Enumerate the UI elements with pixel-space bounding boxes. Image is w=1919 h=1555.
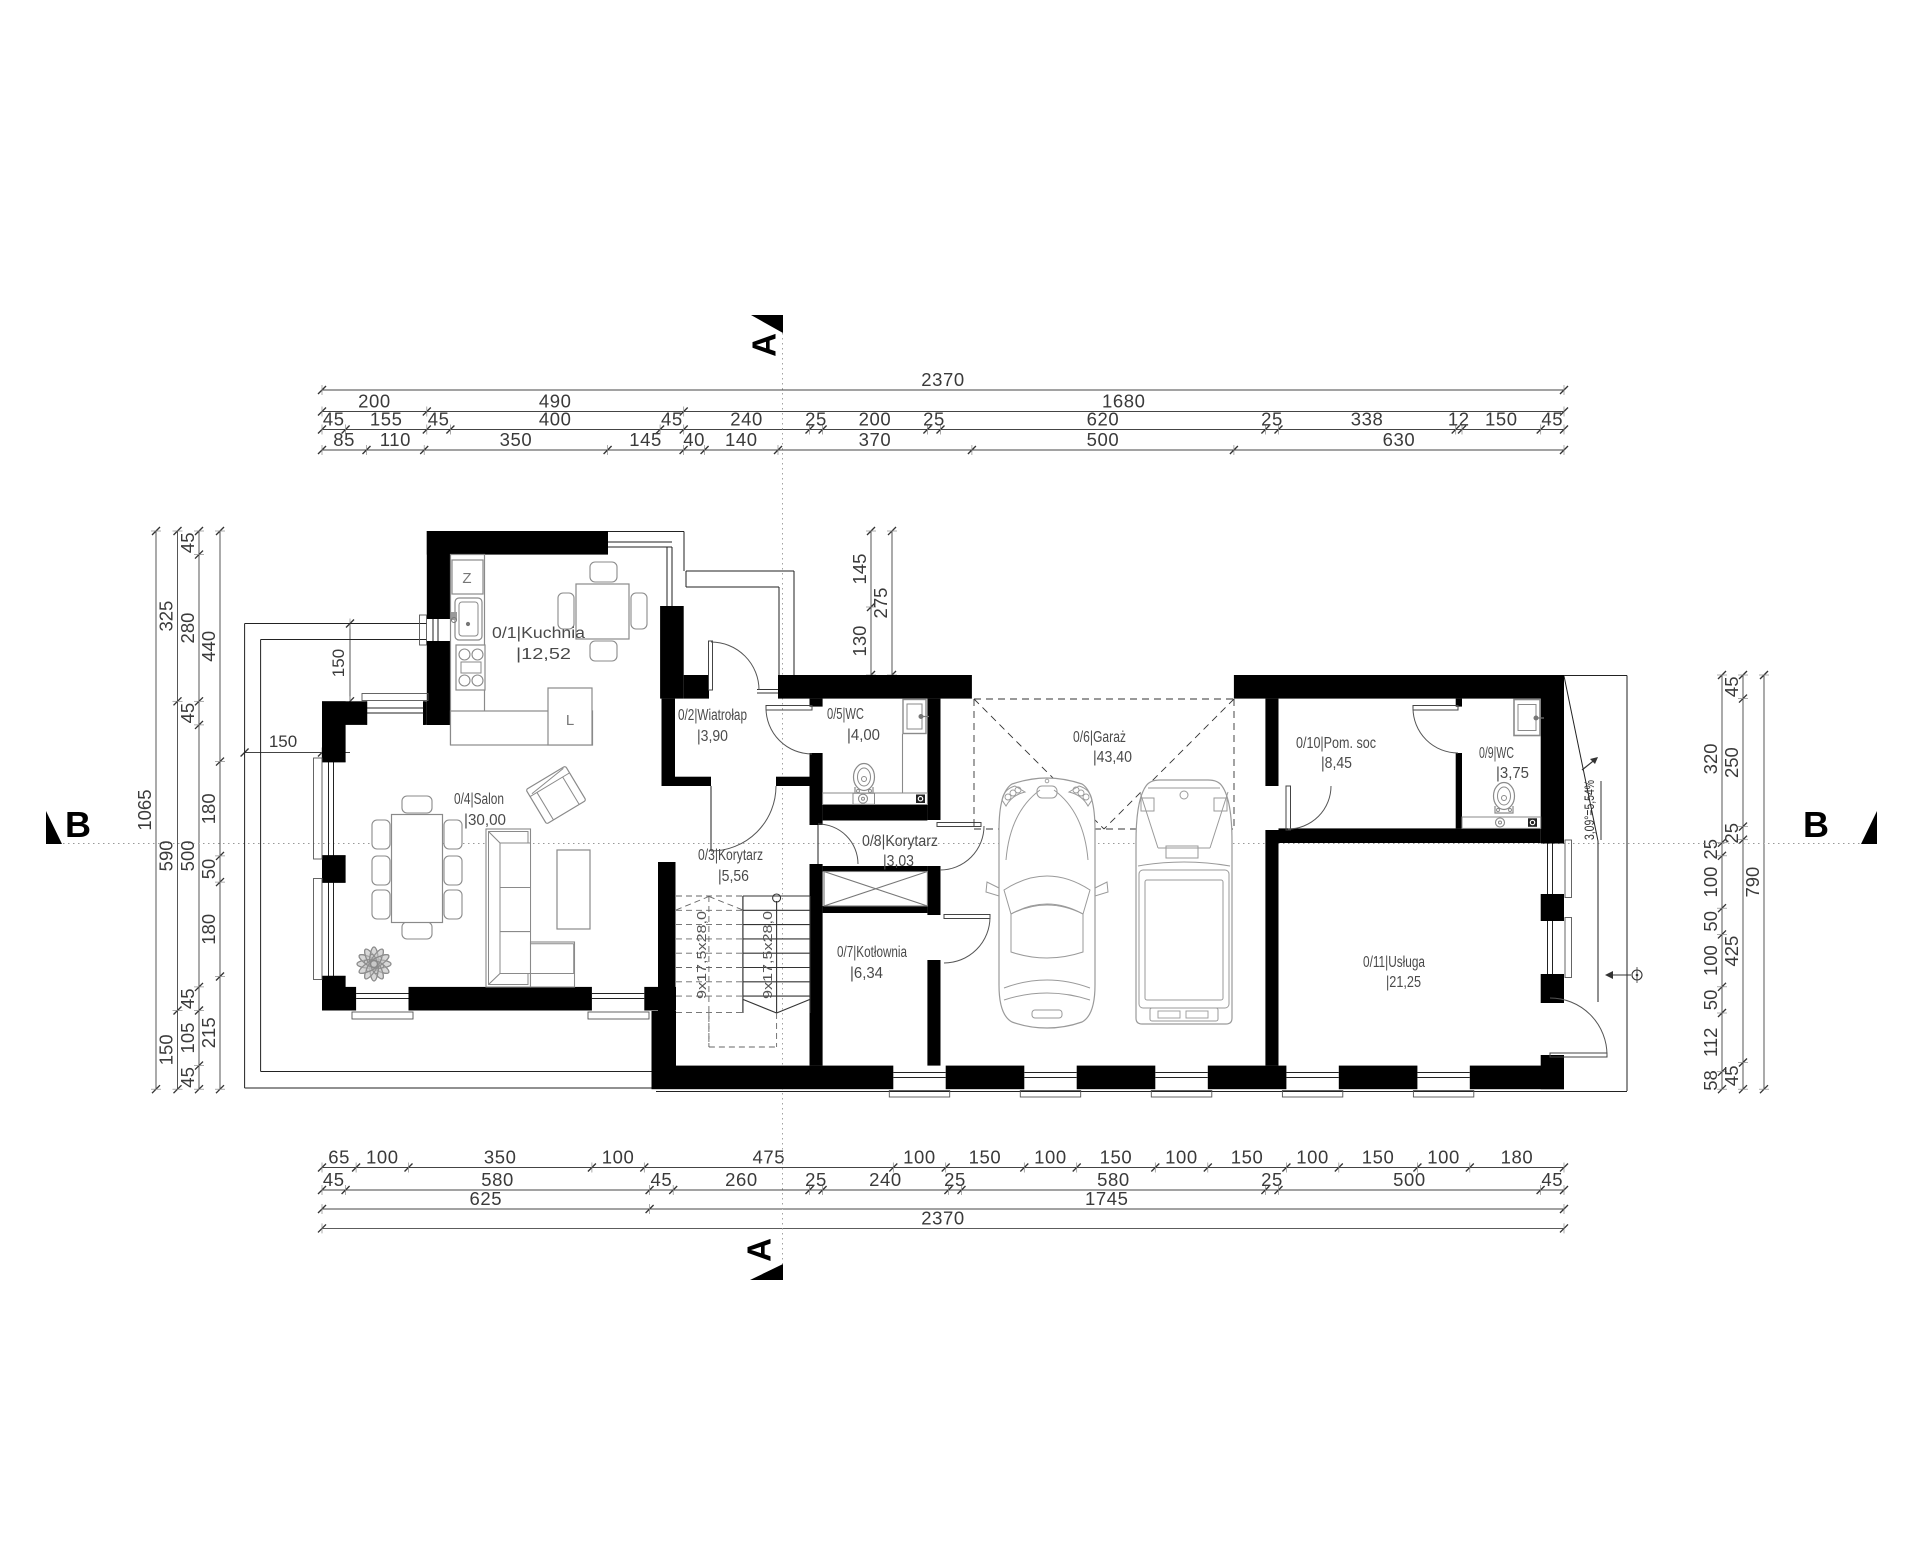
svg-text:100: 100	[602, 1147, 635, 1168]
svg-text:150: 150	[1100, 1147, 1133, 1168]
svg-text:350: 350	[484, 1147, 517, 1168]
svg-text:45: 45	[177, 703, 198, 724]
svg-text:110: 110	[380, 429, 411, 450]
svg-text:130: 130	[849, 626, 870, 657]
svg-text:|5,56: |5,56	[718, 868, 749, 885]
svg-text:0/2|Wiatrołap: 0/2|Wiatrołap	[678, 707, 747, 724]
svg-text:3,09°=5,54%: 3,09°=5,54%	[1581, 780, 1597, 840]
svg-text:45: 45	[1541, 409, 1563, 430]
svg-text:100: 100	[1165, 1147, 1198, 1168]
svg-text:350: 350	[500, 429, 533, 450]
svg-text:45: 45	[323, 409, 345, 430]
svg-text:25: 25	[923, 409, 945, 430]
svg-text:|6,34: |6,34	[850, 965, 883, 982]
svg-text:|30,00: |30,00	[464, 812, 506, 829]
svg-text:400: 400	[539, 409, 572, 430]
svg-text:0/1|Kuchnia: 0/1|Kuchnia	[492, 625, 585, 642]
svg-text:280: 280	[177, 613, 198, 644]
svg-text:150: 150	[329, 649, 348, 677]
svg-text:25: 25	[805, 409, 827, 430]
svg-text:0/9|WC: 0/9|WC	[1479, 745, 1514, 762]
svg-text:45: 45	[661, 409, 683, 430]
svg-text:0/10|Pom. soc: 0/10|Pom. soc	[1296, 735, 1376, 752]
svg-text:50: 50	[198, 859, 219, 880]
svg-text:65: 65	[328, 1147, 350, 1168]
svg-text:320: 320	[1700, 743, 1721, 774]
svg-text:790: 790	[1742, 867, 1763, 898]
svg-text:B: B	[1803, 804, 1829, 845]
svg-text:240: 240	[730, 409, 763, 430]
svg-text:338: 338	[1351, 409, 1384, 430]
svg-text:2370: 2370	[921, 1208, 965, 1229]
svg-text:Z: Z	[462, 570, 471, 587]
svg-text:150: 150	[156, 1034, 177, 1065]
svg-text:0/6|Garaż: 0/6|Garaż	[1073, 729, 1126, 746]
svg-text:100: 100	[1700, 867, 1721, 898]
svg-text:590: 590	[156, 840, 177, 871]
svg-text:1065: 1065	[134, 790, 155, 831]
svg-text:630: 630	[1383, 429, 1416, 450]
svg-text:140: 140	[725, 429, 758, 450]
svg-text:45: 45	[177, 1067, 198, 1088]
svg-text:100: 100	[903, 1147, 936, 1168]
svg-text:9x17,5x28,0: 9x17,5x28,0	[761, 911, 775, 999]
svg-text:|3,03: |3,03	[883, 853, 914, 870]
svg-text:|43,40: |43,40	[1093, 749, 1132, 766]
svg-text:50: 50	[1700, 911, 1721, 932]
svg-text:580: 580	[1097, 1169, 1130, 1190]
svg-text:580: 580	[481, 1169, 514, 1190]
svg-text:0/4|Salon: 0/4|Salon	[454, 791, 504, 808]
svg-text:475: 475	[752, 1147, 785, 1168]
svg-text:105: 105	[177, 1023, 198, 1054]
svg-text:145: 145	[849, 554, 870, 585]
svg-text:500: 500	[1087, 429, 1120, 450]
svg-text:45: 45	[177, 988, 198, 1009]
svg-text:45: 45	[1721, 677, 1742, 698]
svg-text:|12,52: |12,52	[516, 646, 571, 663]
svg-text:25: 25	[1700, 839, 1721, 860]
svg-text:58: 58	[1700, 1070, 1721, 1091]
svg-text:0/8|Korytarz: 0/8|Korytarz	[862, 833, 938, 850]
svg-text:|4,00: |4,00	[847, 727, 880, 744]
svg-text:150: 150	[1231, 1147, 1264, 1168]
svg-text:625: 625	[469, 1188, 502, 1209]
svg-text:215: 215	[198, 1017, 219, 1048]
svg-text:100: 100	[1700, 945, 1721, 976]
svg-text:|21,25: |21,25	[1386, 974, 1421, 991]
svg-text:240: 240	[869, 1169, 902, 1190]
svg-text:A: A	[746, 333, 783, 357]
svg-text:25: 25	[805, 1169, 827, 1190]
svg-text:12: 12	[1448, 409, 1470, 430]
svg-text:180: 180	[198, 914, 219, 945]
svg-text:45: 45	[323, 1169, 345, 1190]
svg-text:25: 25	[1721, 823, 1742, 844]
svg-text:100: 100	[1296, 1147, 1329, 1168]
svg-text:|3,75: |3,75	[1496, 765, 1529, 782]
svg-text:500: 500	[177, 840, 198, 871]
svg-text:500: 500	[1393, 1169, 1426, 1190]
svg-text:45: 45	[428, 409, 450, 430]
svg-text:0/11|Usługa: 0/11|Usługa	[1363, 954, 1425, 971]
svg-text:200: 200	[859, 409, 892, 430]
svg-text:145: 145	[629, 429, 662, 450]
svg-text:150: 150	[1362, 1147, 1395, 1168]
svg-text:260: 260	[725, 1169, 758, 1190]
svg-text:2370: 2370	[921, 369, 965, 390]
svg-text:25: 25	[1261, 1169, 1283, 1190]
svg-text:|3,90: |3,90	[697, 728, 728, 745]
svg-text:180: 180	[198, 793, 219, 824]
svg-text:155: 155	[370, 409, 403, 430]
svg-text:B: B	[65, 804, 91, 845]
svg-text:45: 45	[1541, 1169, 1563, 1190]
svg-text:L: L	[566, 712, 574, 729]
svg-text:620: 620	[1087, 409, 1120, 430]
svg-text:370: 370	[859, 429, 892, 450]
svg-text:50: 50	[1700, 990, 1721, 1011]
svg-text:150: 150	[969, 1147, 1002, 1168]
svg-text:0/3|Korytarz: 0/3|Korytarz	[698, 847, 763, 864]
svg-text:45: 45	[1721, 1066, 1742, 1087]
svg-text:|8,45: |8,45	[1321, 755, 1352, 772]
svg-text:150: 150	[269, 732, 297, 751]
svg-text:25: 25	[1261, 409, 1283, 430]
svg-text:0/7|Kotłownia: 0/7|Kotłownia	[837, 944, 907, 961]
svg-text:112: 112	[1700, 1028, 1721, 1058]
svg-text:A: A	[741, 1238, 778, 1262]
svg-text:275: 275	[870, 588, 891, 619]
svg-text:180: 180	[1501, 1147, 1534, 1168]
svg-text:45: 45	[177, 533, 198, 554]
svg-text:45: 45	[651, 1169, 673, 1190]
svg-text:0/5|WC: 0/5|WC	[827, 706, 864, 723]
svg-text:425: 425	[1721, 936, 1742, 967]
svg-text:440: 440	[198, 631, 219, 662]
svg-text:100: 100	[1034, 1147, 1067, 1168]
svg-text:325: 325	[156, 601, 177, 632]
svg-text:85: 85	[333, 429, 355, 450]
svg-text:250: 250	[1721, 747, 1742, 778]
svg-text:150: 150	[1485, 409, 1518, 430]
svg-text:1745: 1745	[1085, 1188, 1129, 1209]
svg-text:25: 25	[944, 1169, 966, 1190]
svg-text:40: 40	[683, 429, 705, 450]
svg-text:100: 100	[1427, 1147, 1460, 1168]
svg-text:100: 100	[366, 1147, 399, 1168]
svg-text:9x17,5x28,0: 9x17,5x28,0	[695, 911, 709, 999]
